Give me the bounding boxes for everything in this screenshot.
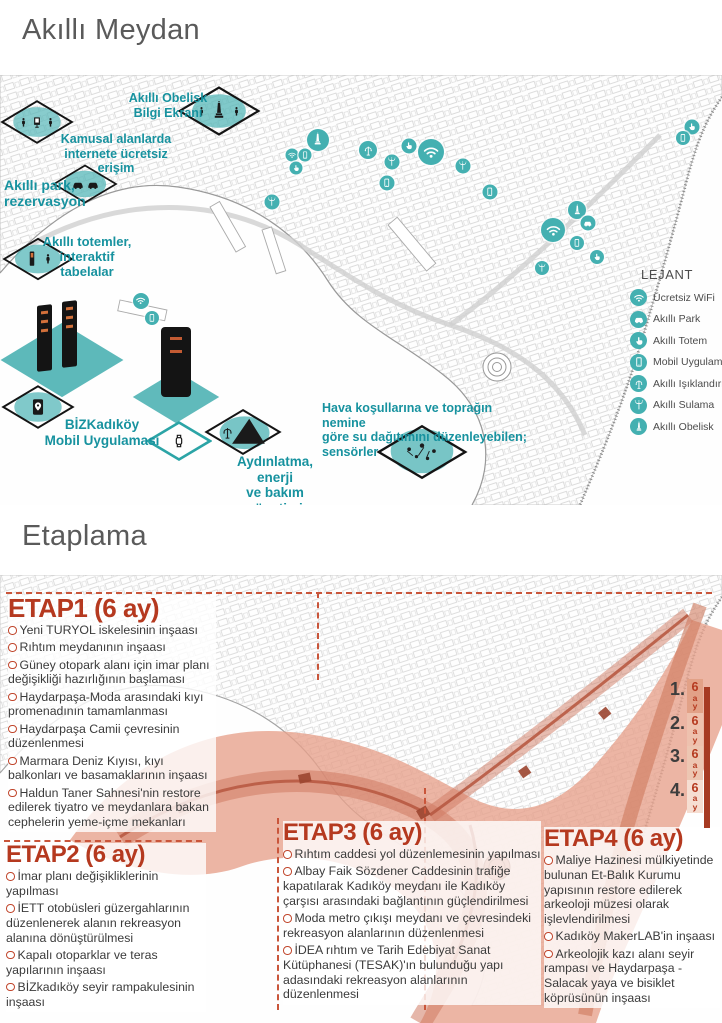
legend: LEJANT Ücretsiz WiFi Akıllı Park Akıllı …	[630, 267, 722, 440]
mobile-app-icon	[483, 185, 498, 200]
legend-item: Ücretsiz WiFi	[630, 289, 722, 306]
bullet-circle-icon	[8, 643, 17, 652]
etap-list-item: Rıhtım meydanının inşaası	[8, 640, 216, 655]
legend-item: Akıllı Sulama	[630, 397, 722, 414]
legend-item: Akıllı Totem	[630, 332, 722, 349]
bullet-circle-icon	[6, 904, 15, 913]
bullet-circle-icon	[8, 626, 17, 635]
mobile-app-icon	[570, 236, 584, 250]
akilli-meydan-map: Akıllı Obelisk Bilgi Ekranı Kamusal alan…	[0, 75, 722, 505]
etap4-heading: ETAP4 (6 ay)	[544, 827, 720, 851]
callout-free-internet: Kamusal alanlarda internete ücretsiz eri…	[50, 132, 182, 176]
etap1-block: ETAP1 (6 ay) Yeni TURYOL iskelesinin inş…	[8, 595, 216, 832]
phase-duration-block: 6 a y	[687, 679, 703, 713]
etaplama-map: ETAP1 (6 ay) Yeni TURYOL iskelesinin inş…	[0, 575, 722, 1023]
bullet-circle-icon	[8, 661, 17, 670]
bullet-circle-icon	[6, 951, 15, 960]
etap3-heading: ETAP3 (6 ay)	[283, 821, 541, 845]
etap-list-item: İmar planı değişikliklerinin yapılması	[6, 869, 206, 899]
bullet-circle-icon	[6, 872, 15, 881]
etap4-list: Maliye Hazinesi mülkiyetinde bulunan Et-…	[544, 853, 720, 1006]
mobile-app-icon	[145, 311, 159, 325]
smart-obelisk-icon	[307, 129, 329, 151]
bullet-circle-icon	[8, 693, 17, 702]
mobile-app-icon	[299, 149, 312, 162]
bullet-circle-icon	[544, 856, 553, 865]
smart-park-icon	[630, 311, 647, 328]
etap-list-item: Haydarpaşa Camii çevresinin düzenlenmesi	[8, 722, 216, 752]
etap-list-item: Kadıköy MakerLAB'in inşaası	[544, 929, 720, 944]
phase-number: 2.	[655, 713, 685, 732]
bullet-circle-icon	[283, 867, 292, 876]
smart-totem-icon	[290, 162, 303, 175]
callout-bizkadikoy-app: BİZKadıköy Mobil Uygulaması	[42, 417, 162, 448]
bullet-circle-icon	[544, 950, 553, 959]
timeline-bar	[704, 687, 710, 828]
callout-smart-totem: Akıllı totemler, interaktif tabelalar	[40, 234, 134, 279]
wifi-icon	[541, 218, 565, 242]
mobile-app-icon	[676, 131, 690, 145]
person-icon	[18, 117, 29, 128]
etap-list-item: Haydarpaşa-Moda arasındaki kıyı promenad…	[8, 690, 216, 720]
etap-list-item: İETT otobüsleri güzergahlarının düzenlen…	[6, 901, 206, 945]
obelisk-icon	[208, 100, 230, 122]
phase-boundary-line	[277, 818, 279, 1010]
bullet-circle-icon	[283, 914, 292, 923]
smart-lighting-icon	[630, 375, 647, 392]
car-icon	[86, 177, 100, 191]
smart-irrigation-icon	[535, 261, 549, 275]
etap3-list: Rıhtım caddesi yol düzenlemesinin yapılm…	[283, 847, 541, 1002]
totem-kiosk	[37, 304, 52, 372]
callout-diamond-lighting	[204, 407, 282, 457]
street-lamp-icon	[220, 425, 235, 440]
person-icon	[45, 117, 56, 128]
smartphone-graphic	[161, 327, 191, 397]
smart-irrigation-icon	[456, 159, 471, 174]
presentation-page: Akıllı Meydan	[0, 0, 722, 1023]
smart-obelisk-icon	[630, 418, 647, 435]
phase-duration-block: 6 a y	[687, 713, 703, 747]
etap-list-item: Albay Faik Sözdener Caddesinin trafiğe k…	[283, 864, 541, 908]
totem-kiosk	[62, 300, 77, 368]
phase-duration-block: 6 a y	[687, 746, 703, 780]
wifi-icon	[418, 139, 444, 165]
phase-boundary-line	[317, 592, 319, 680]
etap-list-item: Marmara Deniz Kıyısı, kıyı balkonları ve…	[8, 754, 216, 784]
totem-icon	[23, 250, 41, 268]
etap-list-item: Arkeolojik kazı alanı seyir rampası ve H…	[544, 947, 720, 1006]
section-title-etaplama: Etaplama	[22, 520, 147, 553]
callout-sensors: Hava koşullarına ve toprağın nemine göre…	[322, 401, 532, 459]
legend-item: Akıllı Obelisk	[630, 418, 722, 435]
bullet-circle-icon	[283, 946, 292, 955]
wifi-icon	[286, 149, 299, 162]
smart-irrigation-icon	[265, 195, 280, 210]
phase-number: 3.	[655, 746, 685, 765]
etap3-block: ETAP3 (6 ay) Rıhtım caddesi yol düzenlem…	[283, 821, 541, 1005]
phase-duration-block: 6 a y	[687, 780, 703, 814]
etap4-block: ETAP4 (6 ay) Maliye Hazinesi mülkiyetind…	[544, 827, 720, 1008]
legend-item: Mobil Uygulama	[630, 354, 722, 371]
etap-list-item: İDEA rıhtım ve Tarih Edebiyat Sanat Kütü…	[283, 943, 541, 1002]
etap2-list: İmar planı değişikliklerinin yapılmasıİE…	[6, 869, 206, 1009]
section-title-akilli-meydan: Akıllı Meydan	[22, 14, 200, 47]
bullet-circle-icon	[8, 757, 17, 766]
smart-irrigation-icon	[630, 397, 647, 414]
wifi-icon	[133, 293, 149, 309]
etap-list-item: Moda metro çıkışı meydanı ve çevresindek…	[283, 911, 541, 941]
etap1-list: Yeni TURYOL iskelesinin inşaasıRıhtım me…	[8, 623, 216, 830]
legend-item: Akıllı Işıklandırma	[630, 375, 722, 392]
timeline-row-1: 1. 6 a y	[655, 679, 703, 713]
timeline-row-3: 3. 6 a y	[655, 746, 703, 780]
bullet-circle-icon	[8, 725, 17, 734]
bullet-circle-icon	[544, 932, 553, 941]
etap-list-item: Rıhtım caddesi yol düzenlemesinin yapılm…	[283, 847, 541, 862]
mobile-app-icon	[380, 176, 395, 191]
smart-totem-icon	[590, 250, 604, 264]
etap2-block: ETAP2 (6 ay) İmar planı değişikliklerini…	[6, 843, 206, 1012]
person-icon	[231, 106, 242, 117]
etap-list-item: Yeni TURYOL iskelesinin inşaası	[8, 623, 216, 638]
etap-list-item: Kapalı otoparklar ve teras yapılarının i…	[6, 948, 206, 978]
timeline-row-2: 2. 6 a y	[655, 713, 703, 747]
phone-location-pin-icon	[27, 396, 49, 418]
phase-number: 4.	[655, 780, 685, 799]
kiosk-screen-icon	[30, 115, 44, 129]
smart-lighting-icon	[359, 141, 377, 159]
smart-irrigation-icon	[385, 155, 400, 170]
phase-timeline: 1. 6 a y 2. 6 a y 3. 6 a	[655, 679, 703, 813]
wifi-icon	[630, 289, 647, 306]
etap-list-item: Haldun Taner Sahnesi'nin restore edilere…	[8, 786, 216, 830]
timeline-row-4: 4. 6 a y	[655, 780, 703, 814]
etap-list-item: Maliye Hazinesi mülkiyetinde bulunan Et-…	[544, 853, 720, 927]
callout-akilli-obelisk: Akıllı Obelisk Bilgi Ekranı	[125, 91, 211, 120]
etap1-heading: ETAP1 (6 ay)	[8, 595, 216, 621]
callout-smart-park: Akıllı park, rezervasyon	[4, 177, 86, 209]
callout-lighting-energy: Aydınlatma, enerji ve bakım yönetimi	[218, 454, 332, 505]
phase-number: 1.	[655, 679, 685, 698]
bullet-circle-icon	[8, 789, 17, 798]
smart-park-icon	[581, 216, 596, 231]
etap-list-item: Güney otopark alanı için imar planı deği…	[8, 658, 216, 688]
mobile-app-icon	[630, 354, 647, 371]
bullet-circle-icon	[283, 850, 292, 859]
etap-list-item: BİZkadıköy seyir rampakulesinin inşaası	[6, 980, 206, 1010]
bullet-circle-icon	[6, 983, 15, 992]
smartwatch-icon	[171, 433, 187, 449]
legend-item: Akıllı Park	[630, 311, 722, 328]
legend-title: LEJANT	[641, 267, 722, 282]
smart-totem-icon	[630, 332, 647, 349]
etap2-heading: ETAP2 (6 ay)	[6, 843, 206, 867]
smart-totem-icon	[402, 139, 417, 154]
